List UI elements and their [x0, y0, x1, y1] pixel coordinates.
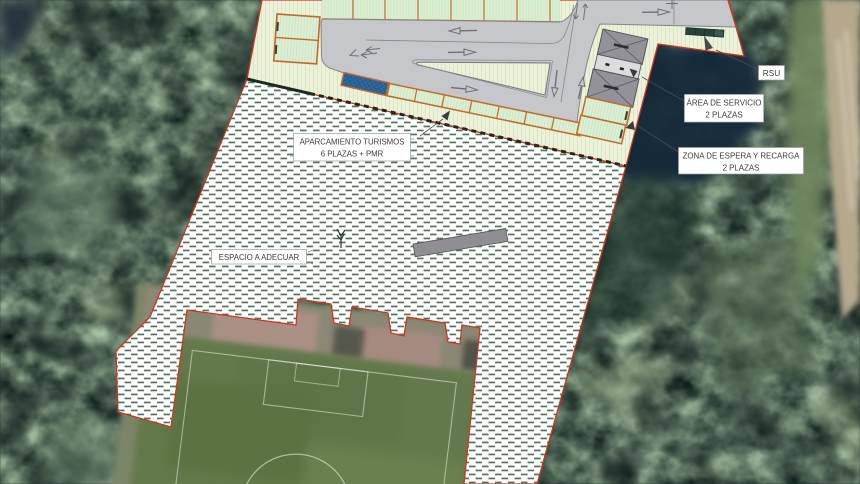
- svg-text:2 PLAZAS: 2 PLAZAS: [705, 111, 742, 120]
- svg-text:2 PLAZAS: 2 PLAZAS: [723, 164, 760, 173]
- svg-text:ESPACIO A ADECUAR: ESPACIO A ADECUAR: [219, 253, 300, 262]
- svg-text:ZONA DE ESPERA Y RECARGA: ZONA DE ESPERA Y RECARGA: [683, 152, 801, 161]
- svg-text:RSU: RSU: [763, 68, 781, 78]
- svg-text:ÁREA DE SERVICIO: ÁREA DE SERVICIO: [687, 99, 762, 108]
- svg-text:APARCAMIENTO TURISMOS: APARCAMIENTO TURISMOS: [300, 138, 405, 147]
- svg-text:6 PLAZAS + PMR: 6 PLAZAS + PMR: [321, 150, 384, 159]
